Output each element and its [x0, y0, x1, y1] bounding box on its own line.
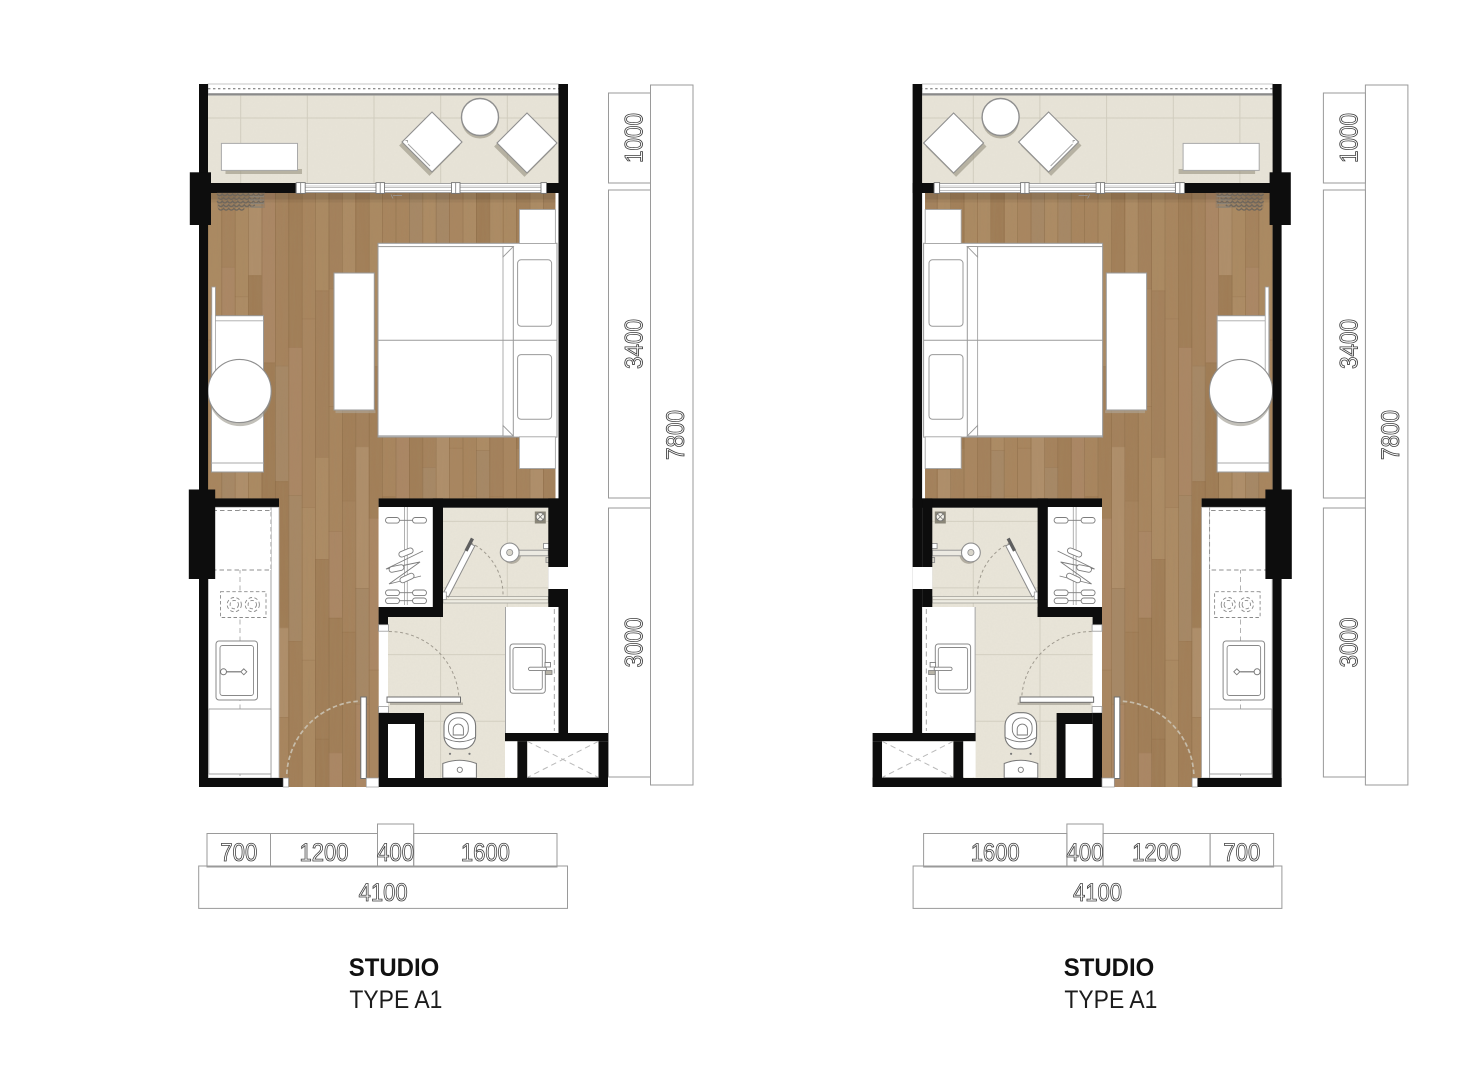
svg-text:3000: 3000: [621, 618, 649, 668]
svg-text:700: 700: [220, 839, 257, 867]
svg-text:1200: 1200: [1132, 839, 1181, 867]
svg-text:700: 700: [1223, 839, 1260, 867]
svg-text:3400: 3400: [621, 319, 649, 369]
svg-text:STUDIO: STUDIO: [1064, 954, 1155, 982]
svg-text:400: 400: [377, 839, 414, 867]
svg-text:TYPE A1: TYPE A1: [1064, 986, 1157, 1014]
svg-text:4100: 4100: [1073, 879, 1122, 907]
svg-text:400: 400: [1067, 839, 1104, 867]
svg-text:3400: 3400: [1335, 319, 1363, 369]
svg-text:1000: 1000: [1335, 113, 1363, 163]
svg-text:4100: 4100: [359, 879, 408, 907]
svg-text:3000: 3000: [1335, 618, 1363, 668]
svg-text:1600: 1600: [461, 839, 510, 867]
svg-text:1600: 1600: [971, 839, 1020, 867]
svg-text:1200: 1200: [300, 839, 349, 867]
svg-text:TYPE A1: TYPE A1: [349, 986, 442, 1014]
svg-text:STUDIO: STUDIO: [349, 954, 440, 982]
svg-text:1000: 1000: [621, 113, 649, 163]
svg-text:7800: 7800: [662, 410, 690, 460]
svg-text:7800: 7800: [1377, 410, 1405, 460]
